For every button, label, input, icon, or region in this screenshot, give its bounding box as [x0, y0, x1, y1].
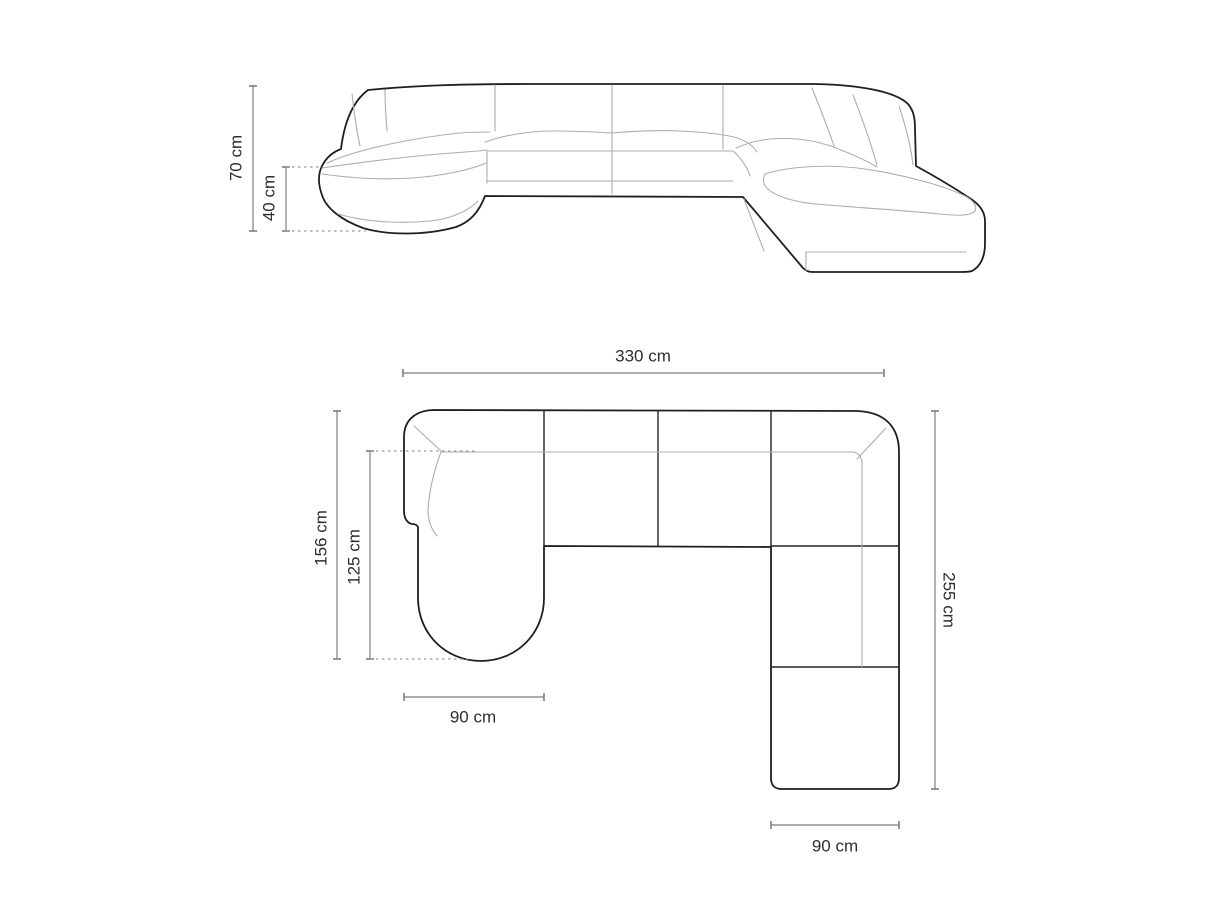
front-upholstery-seams	[322, 85, 976, 271]
diagram-canvas	[0, 0, 1214, 911]
dim-label-chaise-width: 90 cm	[450, 709, 496, 726]
sofa-dimension-diagram: 70 cm 40 cm 330 cm 156 cm 125 cm 90 cm 2…	[0, 0, 1214, 911]
dim-label-right-depth: 255 cm	[941, 572, 958, 628]
dim-label-end-module-width: 90 cm	[812, 838, 858, 855]
dim-90cm-end-line	[771, 821, 899, 829]
dim-label-chaise-length: 125 cm	[346, 529, 363, 585]
top-module-seams	[414, 411, 899, 667]
dim-label-total-height: 70 cm	[228, 135, 245, 181]
dim-255cm-line	[931, 411, 939, 789]
top-sofa-outline	[404, 410, 899, 789]
dim-330cm-line	[403, 369, 884, 377]
dim-90cm-chaise-line	[404, 693, 544, 701]
front-view-drawing	[249, 84, 985, 272]
dim-label-left-depth: 156 cm	[313, 510, 330, 566]
dim-70cm-line	[249, 86, 257, 231]
top-view-drawing	[333, 369, 939, 829]
dim-125cm-line	[366, 451, 477, 659]
dim-156cm-line	[333, 411, 341, 659]
dim-label-seat-height: 40 cm	[261, 175, 278, 221]
dim-label-total-width: 330 cm	[615, 348, 671, 365]
